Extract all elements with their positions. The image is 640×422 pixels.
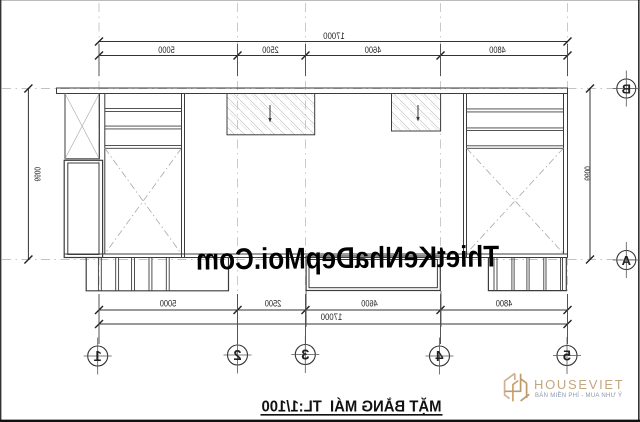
svg-text:17000: 17000 xyxy=(321,312,343,323)
svg-text:A: A xyxy=(621,253,631,268)
svg-text:3: 3 xyxy=(301,348,309,364)
svg-text:2500: 2500 xyxy=(262,45,279,56)
svg-text:BÁN MIỀN PHÍ - MUA NHƯ Ý: BÁN MIỀN PHÍ - MUA NHƯ Ý xyxy=(535,392,622,399)
svg-text:6600: 6600 xyxy=(583,166,592,181)
svg-text:17000: 17000 xyxy=(323,31,345,42)
svg-text:4800: 4800 xyxy=(496,299,513,310)
svg-text:1: 1 xyxy=(94,349,102,365)
svg-text:5: 5 xyxy=(563,349,571,365)
svg-text:HOUSEVIET: HOUSEVIET xyxy=(534,377,624,392)
svg-text:2500: 2500 xyxy=(265,299,282,310)
svg-text:4600: 4600 xyxy=(361,299,378,310)
svg-text:MẶT BẰNG MÁI TL:1/100: MẶT BẰNG MÁI TL:1/100 xyxy=(261,397,441,416)
svg-text:2: 2 xyxy=(233,348,241,364)
svg-text:ThietKeNhaDepMoi.Com: ThietKeNhaDepMoi.Com xyxy=(196,240,499,276)
svg-text:5000: 5000 xyxy=(158,45,175,56)
svg-text:6600: 6600 xyxy=(32,167,41,182)
svg-text:4: 4 xyxy=(435,349,443,365)
svg-text:4800: 4800 xyxy=(489,45,506,56)
svg-text:B: B xyxy=(622,82,631,97)
svg-text:4600: 4600 xyxy=(365,45,382,56)
svg-text:5000: 5000 xyxy=(160,299,177,310)
